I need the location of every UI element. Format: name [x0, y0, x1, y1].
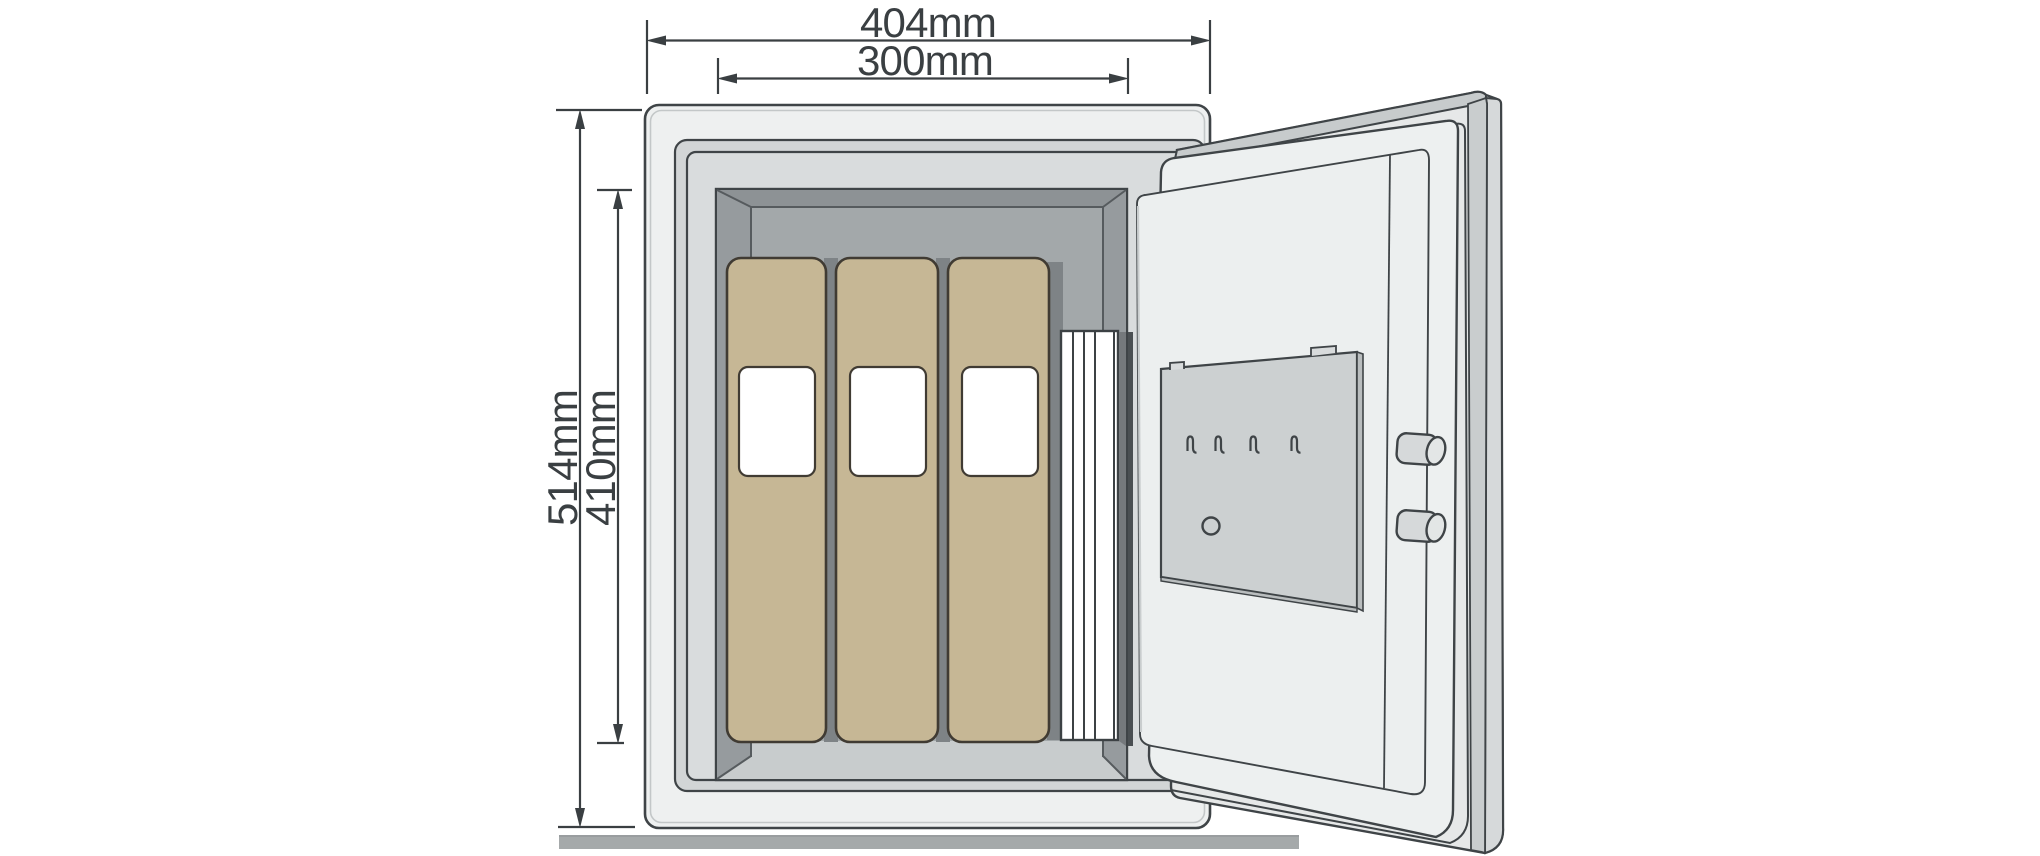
- svg-text:410mm: 410mm: [577, 390, 624, 526]
- svg-text:300mm: 300mm: [857, 37, 993, 84]
